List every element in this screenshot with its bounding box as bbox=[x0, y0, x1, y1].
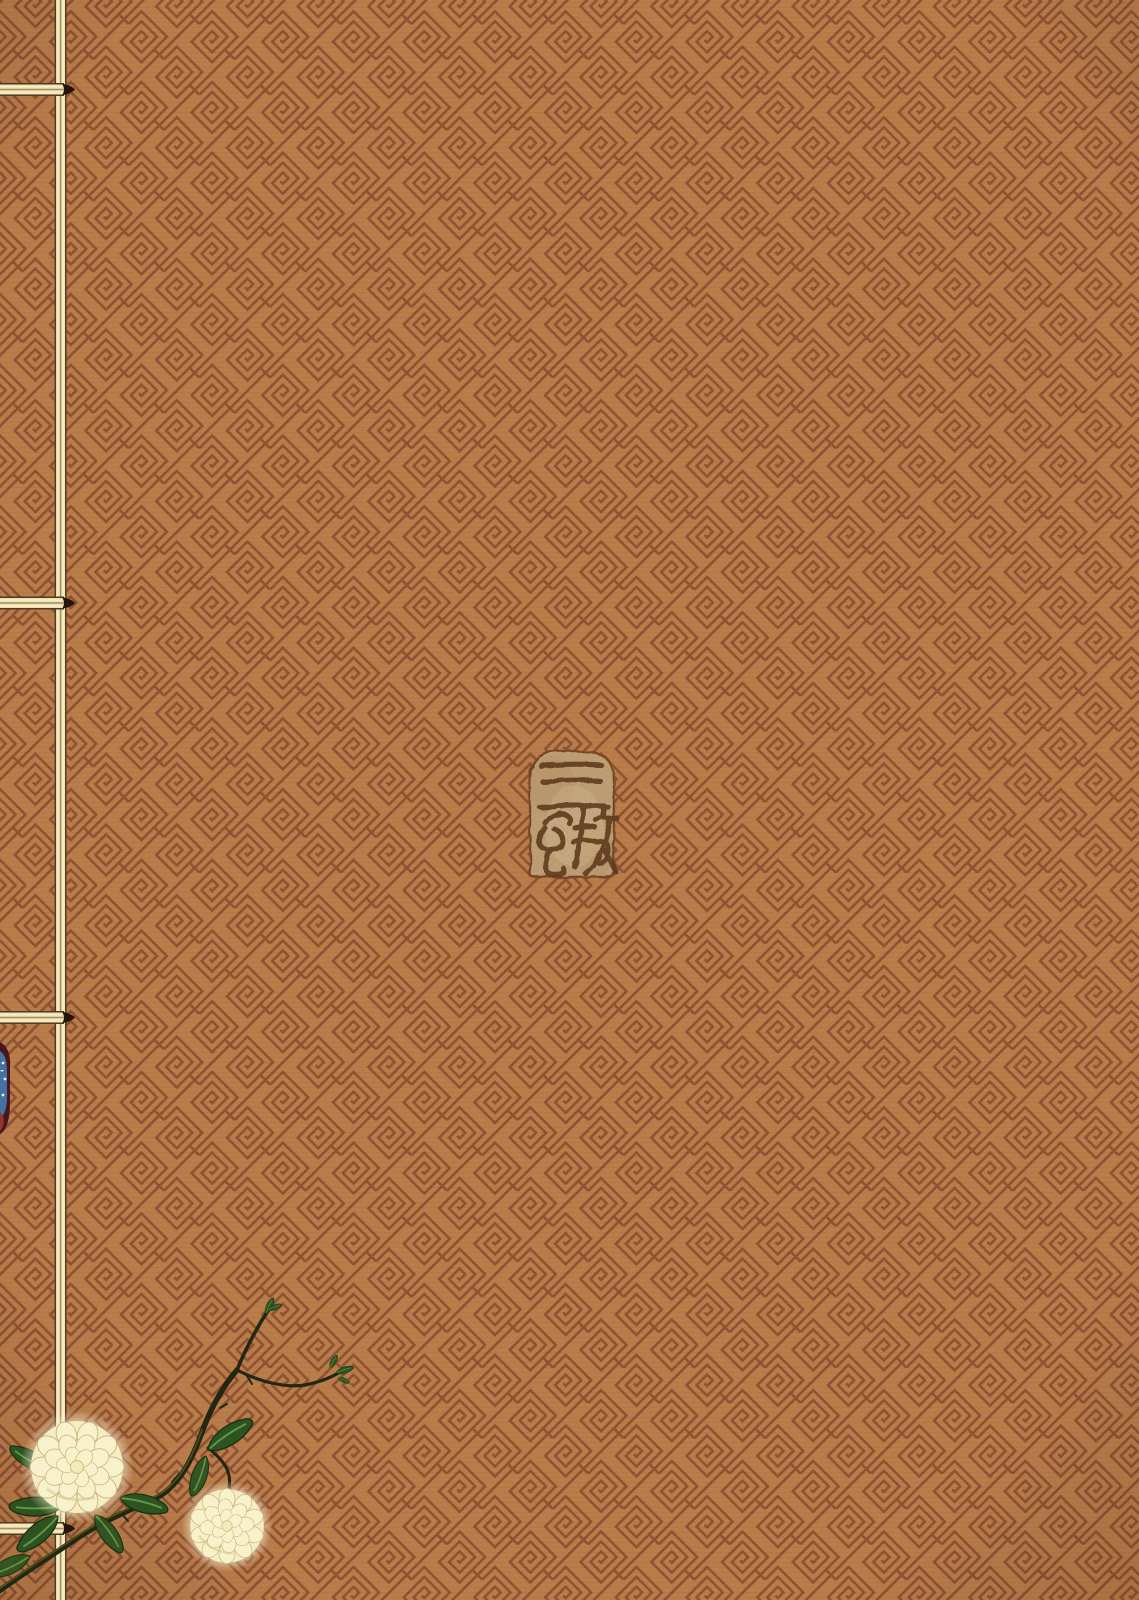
binding-stitch-2 bbox=[0, 597, 75, 610]
seal-char-san-bar3 bbox=[540, 806, 608, 808]
binding-stitch-3 bbox=[0, 1011, 75, 1024]
publisher-seal bbox=[524, 744, 620, 882]
vertical-binding-thread bbox=[55, 0, 67, 1600]
seal-char-san-bar2 bbox=[543, 780, 600, 782]
seal-char-san-bar1 bbox=[541, 764, 601, 766]
book-cover bbox=[0, 0, 1139, 1600]
chrysanthemum-large bbox=[20, 1410, 134, 1524]
binding-stitch-1 bbox=[0, 83, 75, 96]
